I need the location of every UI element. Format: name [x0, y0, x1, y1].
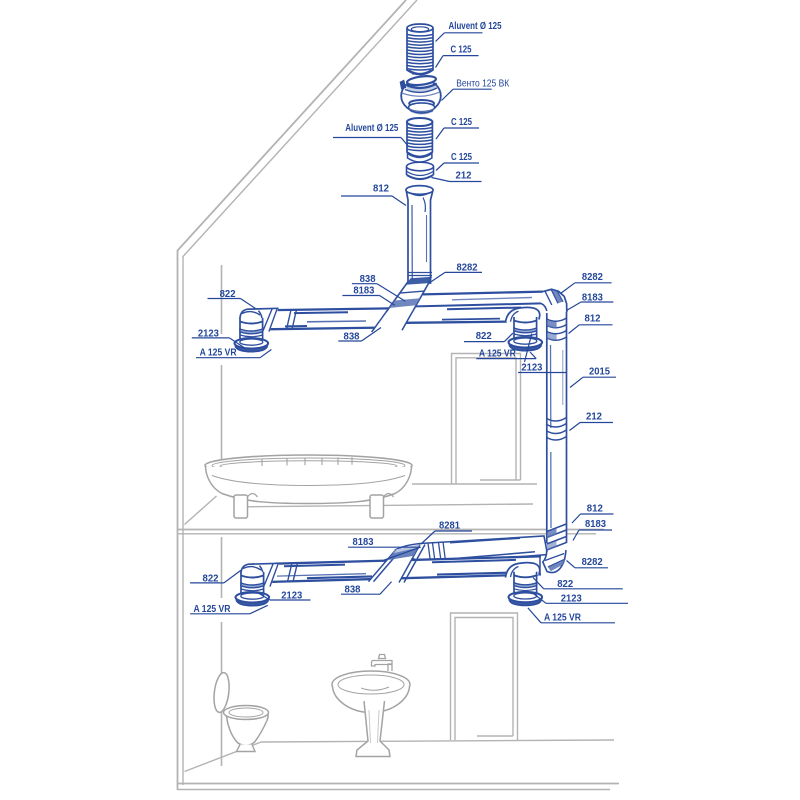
svg-text:2123: 2123 — [521, 361, 542, 373]
svg-text:812: 812 — [587, 502, 603, 514]
svg-text:8183: 8183 — [585, 518, 606, 530]
svg-text:812: 812 — [373, 183, 389, 195]
svg-text:A 125 VR: A 125 VR — [544, 612, 581, 624]
svg-text:Aluvent Ø 125: Aluvent Ø 125 — [345, 122, 398, 134]
svg-text:838: 838 — [345, 583, 361, 595]
svg-text:Венто 125 ВК: Венто 125 ВК — [456, 78, 510, 90]
svg-text:2015: 2015 — [589, 366, 610, 378]
svg-text:212: 212 — [456, 170, 472, 182]
svg-text:8183: 8183 — [353, 536, 374, 548]
svg-text:8183: 8183 — [353, 285, 374, 297]
svg-text:A 125 VR: A 125 VR — [200, 347, 237, 359]
svg-text:A 125 VR: A 125 VR — [479, 348, 516, 360]
svg-text:8281: 8281 — [439, 519, 460, 531]
svg-text:812: 812 — [585, 312, 601, 324]
svg-text:Aluvent Ø 125: Aluvent Ø 125 — [449, 20, 502, 32]
svg-text:212: 212 — [586, 411, 602, 423]
svg-text:C 125: C 125 — [451, 151, 472, 163]
svg-text:C 125: C 125 — [451, 44, 472, 56]
svg-text:C 125: C 125 — [451, 116, 472, 128]
svg-text:8282: 8282 — [582, 556, 603, 568]
svg-text:8282: 8282 — [582, 271, 603, 283]
svg-text:8282: 8282 — [457, 262, 478, 274]
svg-text:822: 822 — [476, 330, 492, 342]
svg-text:822: 822 — [557, 578, 573, 590]
